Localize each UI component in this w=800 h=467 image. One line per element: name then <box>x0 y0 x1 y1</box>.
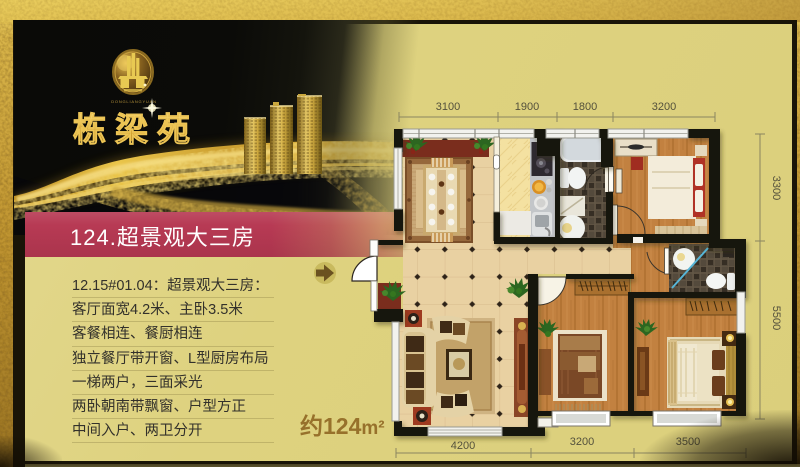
svg-text:约124m²: 约124m² <box>300 413 385 439</box>
svg-text:1900: 1900 <box>515 101 539 113</box>
svg-text:4200: 4200 <box>451 440 475 452</box>
svg-text:1800: 1800 <box>573 101 597 113</box>
svg-text:3200: 3200 <box>652 101 676 113</box>
svg-text:3200: 3200 <box>570 436 594 448</box>
svg-text:3300: 3300 <box>770 176 782 200</box>
svg-text:5500: 5500 <box>770 306 782 330</box>
svg-text:3100: 3100 <box>436 101 460 113</box>
